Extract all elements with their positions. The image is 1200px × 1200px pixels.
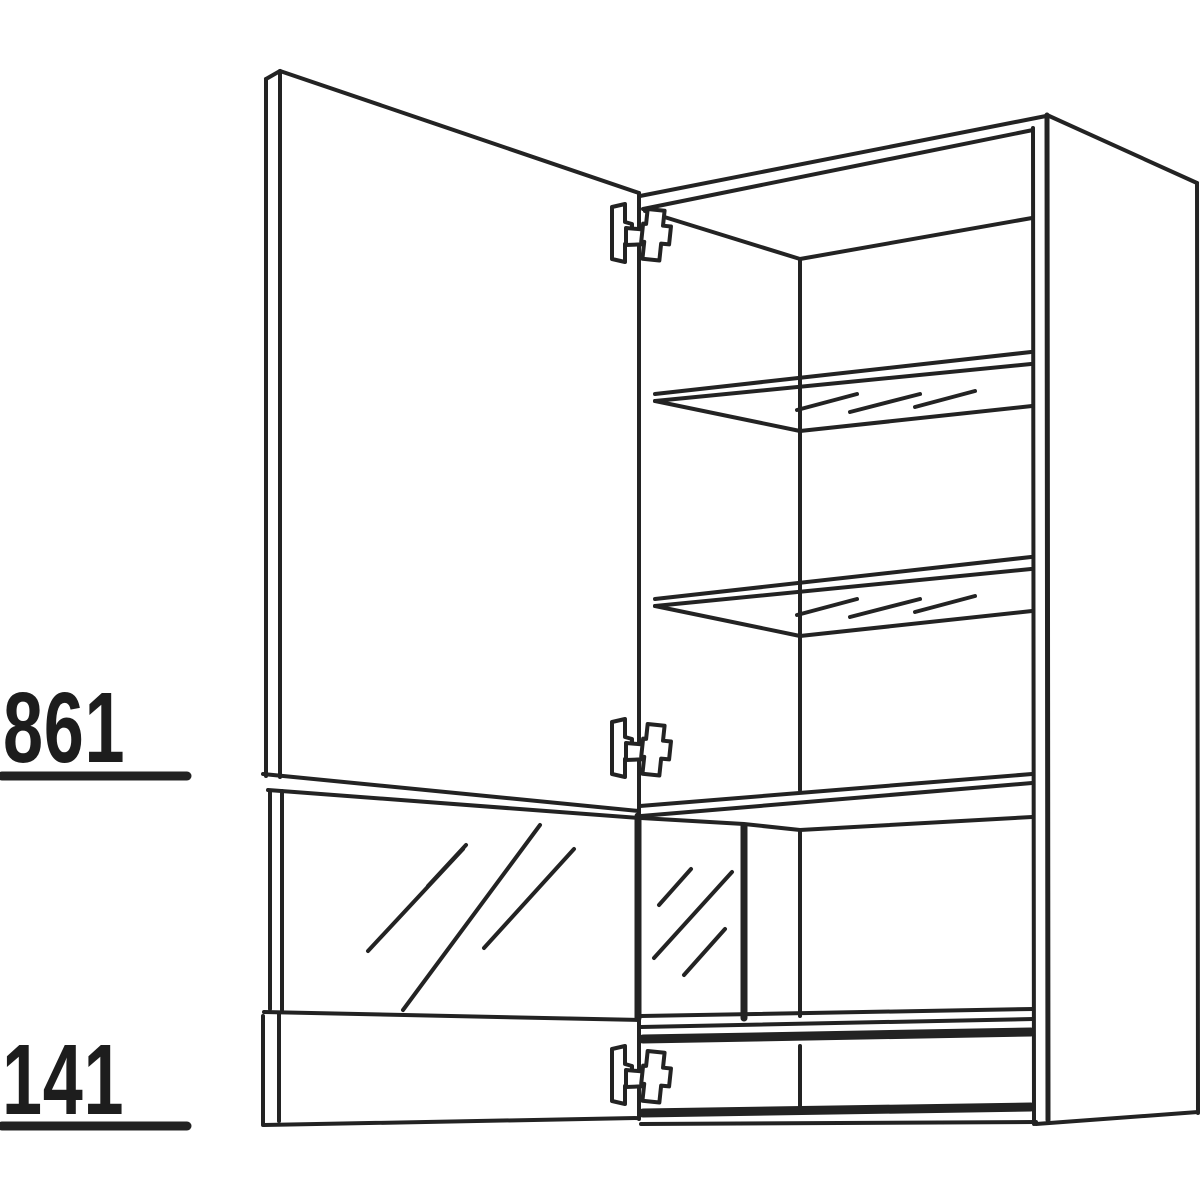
shelf-back-edge [800, 406, 1032, 431]
glass-reflection-line [684, 929, 725, 975]
shelf-front-top-edge [655, 557, 1031, 599]
glass-reflection-line [850, 394, 920, 412]
compartment-bottom-top-line [641, 1009, 1033, 1016]
door-hinge-top [612, 204, 673, 262]
glass-reflection-line [797, 394, 857, 410]
door-hinge-middle [612, 719, 673, 777]
open-door [263, 71, 639, 1125]
shelf-front-bottom-edge [655, 569, 1031, 606]
bottom-strip-section [643, 1046, 1031, 1113]
glass-reflection-line [797, 599, 857, 615]
dimension-lower-label: 141 [2, 1030, 124, 1130]
glass-shelf-upper [655, 352, 1032, 431]
shelf-left-edge [655, 606, 800, 636]
front-right-inner-edge [1033, 128, 1034, 1124]
bottom-glass-compartment [641, 826, 1033, 1039]
glass-reflection-line [428, 845, 466, 886]
shelf-left-edge [655, 401, 800, 431]
top-front-edge [640, 116, 1046, 196]
bottom-front-edge [641, 1122, 1036, 1124]
glass-reflection-line [850, 599, 920, 617]
glass-reflection-line [915, 391, 975, 407]
top-front-inner-edge [643, 130, 1033, 209]
shelf-front-top-edge [655, 352, 1031, 394]
glass-reflection-line [403, 825, 540, 1010]
door-glass-panel [264, 790, 639, 1020]
interior-top-back-edge [800, 218, 1032, 259]
bottom-front-rail [643, 1107, 1031, 1113]
door-top-edge [280, 71, 639, 193]
door-bottom-strip [263, 1014, 639, 1125]
door-glass-bottom-edge [264, 1012, 639, 1020]
right-panel-rear-edge [1197, 183, 1198, 1113]
glass-reflection-line [654, 872, 732, 958]
right-panel-bottom-edge [1036, 1112, 1198, 1124]
compartment-bottom-inner-line [641, 1019, 1033, 1027]
diagram-canvas: 861 141 [0, 0, 1200, 1200]
shelf-back-edge [800, 611, 1032, 636]
cabinet-diagram-svg [0, 0, 1200, 1200]
glass-shelf-lower [655, 557, 1032, 636]
right-panel-top-edge [1047, 115, 1197, 183]
fixed-shelf [640, 774, 1032, 830]
strip-bottom-edge [264, 1118, 639, 1125]
fixed-shelf-underside-edge [641, 817, 1032, 830]
glass-reflection-line [484, 849, 574, 948]
glass-reflection-line [915, 596, 975, 612]
dimension-upper-label: 861 [3, 678, 125, 778]
door-hinge-bottom [612, 1046, 673, 1104]
door-top-thickness-edge [266, 71, 280, 79]
glass-reflection-line [659, 869, 691, 905]
compartment-bottom-rail [643, 1032, 1031, 1039]
shelf-front-bottom-edge [655, 364, 1031, 401]
front-right-outer-edge [1047, 115, 1048, 1120]
